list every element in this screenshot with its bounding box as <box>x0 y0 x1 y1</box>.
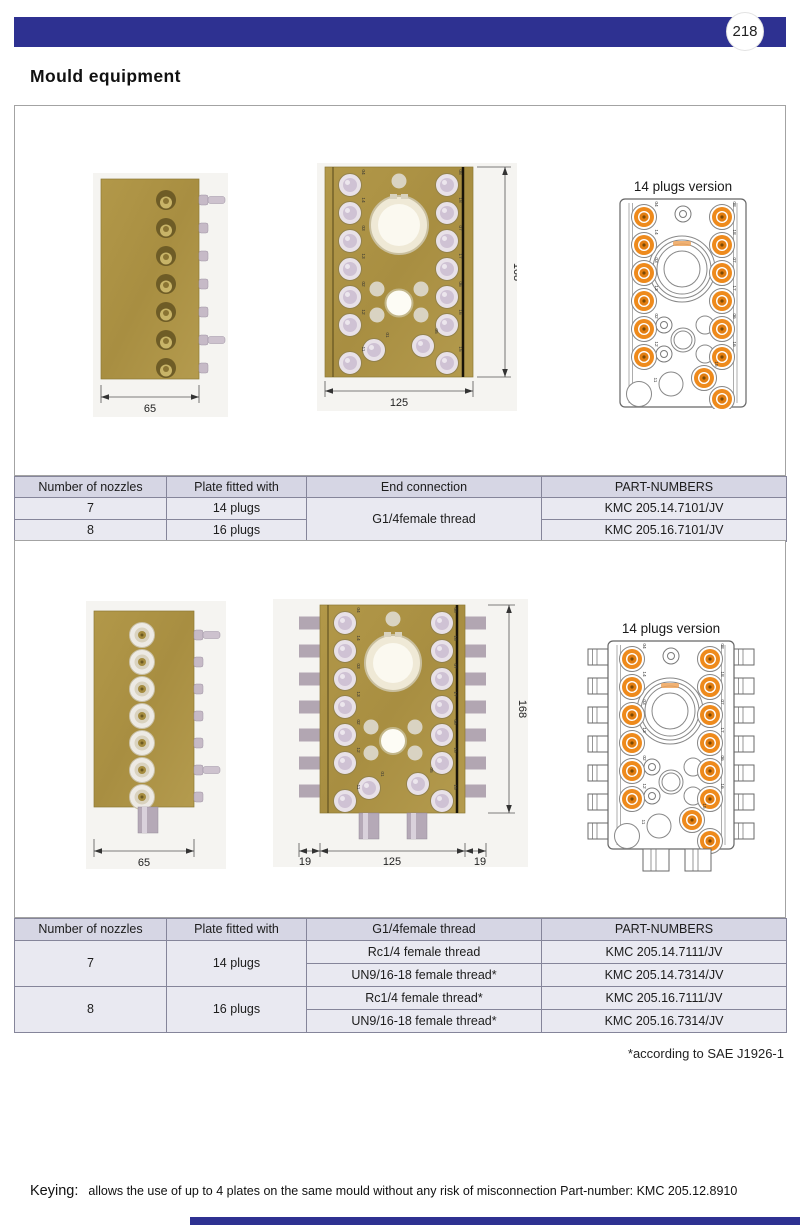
table-row: 7 14 plugs G1/4female thread KMC 205.14.… <box>15 498 787 520</box>
table-cell: 16 plugs <box>167 987 307 1033</box>
svg-text:11: 11 <box>640 820 646 825</box>
table-1: Number of nozzles Plate fitted with End … <box>14 476 787 542</box>
plugs-version-caption-2: 14 plugs version <box>591 621 751 636</box>
table-cell: 8 <box>15 520 167 542</box>
svg-text:15: 15 <box>713 361 719 367</box>
svg-text:13: 13 <box>355 691 361 697</box>
page-number: 218 <box>732 23 757 40</box>
gold-plate <box>101 179 199 379</box>
svg-text:11: 11 <box>355 785 361 790</box>
svg-text:08: 08 <box>457 169 463 175</box>
dim-label: 168 <box>516 700 528 718</box>
table-cell: KMC 205.14.7101/JV <box>542 498 787 520</box>
svg-text:03: 03 <box>355 663 361 669</box>
mounting-foot <box>359 813 379 839</box>
table-row: 8 16 plugs Rc1/4 female thread* KMC 205.… <box>15 987 787 1010</box>
svg-text:04: 04 <box>355 607 361 613</box>
svg-text:12: 12 <box>360 309 366 315</box>
svg-text:02: 02 <box>360 281 366 287</box>
mounting-foot <box>407 813 427 839</box>
svg-text:15: 15 <box>452 784 458 790</box>
mounting-foot <box>643 849 669 871</box>
table-cell: Rc1/4 female thread <box>307 941 542 964</box>
footer-bar <box>190 1217 800 1225</box>
svg-text:16: 16 <box>731 341 737 347</box>
sae-footnote: *according to SAE J1926-1 <box>628 1046 784 1061</box>
table-cell: KMC 205.16.7111/JV <box>542 987 787 1010</box>
svg-text:07: 07 <box>452 663 458 669</box>
front-view-photo-1: 04 14 03 13 02 12 11 08 18 07 17 06 16 1… <box>317 163 517 411</box>
column-header: Number of nozzles <box>15 919 167 941</box>
dim-label: 125 <box>383 856 401 867</box>
svg-text:02: 02 <box>641 755 647 761</box>
svg-text:07: 07 <box>719 699 725 705</box>
svg-text:03: 03 <box>360 225 366 231</box>
column-header: Number of nozzles <box>15 477 167 498</box>
table-cell: KMC 205.14.7314/JV <box>542 964 787 987</box>
svg-text:14: 14 <box>653 229 659 235</box>
page-number-badge: 218 <box>726 12 764 51</box>
table-cell: KMC 205.16.7314/JV <box>542 1010 787 1033</box>
svg-text:13: 13 <box>360 253 366 259</box>
plugs-version-drawing-1: 04 14 03 13 02 12 11 08 18 07 17 06 16 1… <box>608 197 758 409</box>
svg-text:06: 06 <box>719 755 725 761</box>
column-header: PART-NUMBERS <box>542 477 787 498</box>
svg-text:16: 16 <box>719 783 725 789</box>
table-cell: 14 plugs <box>167 498 307 520</box>
table-cell: 8 <box>15 987 167 1033</box>
svg-text:04: 04 <box>360 169 366 175</box>
table-cell: 14 plugs <box>167 941 307 987</box>
column-header: PART-NUMBERS <box>542 919 787 941</box>
svg-text:16: 16 <box>452 747 458 753</box>
column-header: G1/4female thread <box>307 919 542 941</box>
table-cell: 16 plugs <box>167 520 307 542</box>
dim-label: 125 <box>390 397 408 409</box>
svg-text:12: 12 <box>355 747 361 753</box>
table-row: 7 14 plugs Rc1/4 female thread KMC 205.1… <box>15 941 787 964</box>
table-cell: 7 <box>15 498 167 520</box>
dim-label: 65 <box>138 857 150 869</box>
table-cell: Rc1/4 female thread* <box>307 987 542 1010</box>
svg-text:03: 03 <box>653 257 659 263</box>
svg-text:18: 18 <box>719 671 725 677</box>
dim-label: 168 <box>511 263 517 281</box>
keying-text: allows the use of up to 4 plates on the … <box>88 1184 737 1198</box>
svg-text:01: 01 <box>384 332 390 338</box>
svg-text:14: 14 <box>360 197 366 203</box>
svg-text:07: 07 <box>457 225 463 231</box>
svg-text:06: 06 <box>452 719 458 725</box>
svg-text:02: 02 <box>355 719 361 725</box>
mounting-foot <box>138 807 158 833</box>
table-cell: KMC 205.14.7111/JV <box>542 941 787 964</box>
drawings-panel-2: 65 <box>14 540 786 918</box>
drawings-panel-1: 65 <box>14 105 786 476</box>
table-cell: 7 <box>15 941 167 987</box>
svg-text:05: 05 <box>428 767 434 773</box>
svg-text:18: 18 <box>452 635 458 641</box>
keying-note: Keying:allows the use of up to 4 plates … <box>30 1182 737 1200</box>
svg-text:15: 15 <box>457 346 463 352</box>
plugs-version-caption-1: 14 plugs version <box>603 179 763 194</box>
plugs-version-drawing-2: 04 14 03 13 02 12 11 08 18 07 17 06 16 1… <box>581 639 761 879</box>
side-view-photo-2: 65 <box>86 601 226 869</box>
svg-text:17: 17 <box>452 691 458 697</box>
table-cell: KMC 205.16.7101/JV <box>542 520 787 542</box>
svg-text:03: 03 <box>641 699 647 705</box>
svg-text:11: 11 <box>652 378 658 383</box>
svg-text:14: 14 <box>641 671 647 677</box>
svg-text:08: 08 <box>452 607 458 613</box>
svg-text:08: 08 <box>719 643 725 649</box>
fins-left <box>588 649 608 839</box>
logo-mark <box>661 683 679 688</box>
table-2: Number of nozzles Plate fitted with G1/4… <box>14 918 787 1033</box>
dim-label: 19 <box>474 856 486 867</box>
table-cell: UN9/16-18 female thread* <box>307 1010 542 1033</box>
svg-text:13: 13 <box>653 285 659 291</box>
keying-label: Keying: <box>30 1183 78 1199</box>
svg-text:17: 17 <box>457 253 463 259</box>
dim-label: 65 <box>144 403 156 415</box>
svg-text:04: 04 <box>641 643 647 649</box>
catalog-page: 218 Mould equipment 65 <box>0 0 800 1225</box>
column-header: End connection <box>307 477 542 498</box>
svg-text:13: 13 <box>641 727 647 733</box>
svg-text:17: 17 <box>731 285 737 291</box>
svg-text:07: 07 <box>731 257 737 263</box>
logo-mark <box>673 241 691 246</box>
column-header: Plate fitted with <box>167 477 307 498</box>
table-cell: G1/4female thread <box>307 498 542 542</box>
side-view-photo-1: 65 <box>93 173 228 417</box>
svg-text:16: 16 <box>457 309 463 315</box>
svg-text:12: 12 <box>653 341 659 347</box>
svg-text:11: 11 <box>360 347 366 352</box>
svg-text:05: 05 <box>433 328 439 334</box>
svg-text:17: 17 <box>719 727 725 733</box>
fins-right <box>734 649 754 839</box>
svg-text:18: 18 <box>731 229 737 235</box>
svg-text:15: 15 <box>701 803 707 809</box>
svg-text:06: 06 <box>731 313 737 319</box>
dim-label: 19 <box>299 856 311 867</box>
table-cell: UN9/16-18 female thread* <box>307 964 542 987</box>
page-title: Mould equipment <box>30 66 181 87</box>
svg-text:02: 02 <box>653 313 659 319</box>
svg-text:08: 08 <box>731 201 737 207</box>
svg-text:04: 04 <box>653 201 659 207</box>
svg-text:01: 01 <box>379 771 385 777</box>
header-bar <box>14 17 786 47</box>
column-header: Plate fitted with <box>167 919 307 941</box>
svg-text:14: 14 <box>355 635 361 641</box>
svg-text:12: 12 <box>641 783 647 789</box>
front-view-photo-2: 04 14 03 13 02 12 11 08 18 07 17 06 16 1… <box>273 599 528 867</box>
svg-text:06: 06 <box>457 281 463 287</box>
mounting-foot <box>685 849 711 871</box>
svg-text:18: 18 <box>457 197 463 203</box>
